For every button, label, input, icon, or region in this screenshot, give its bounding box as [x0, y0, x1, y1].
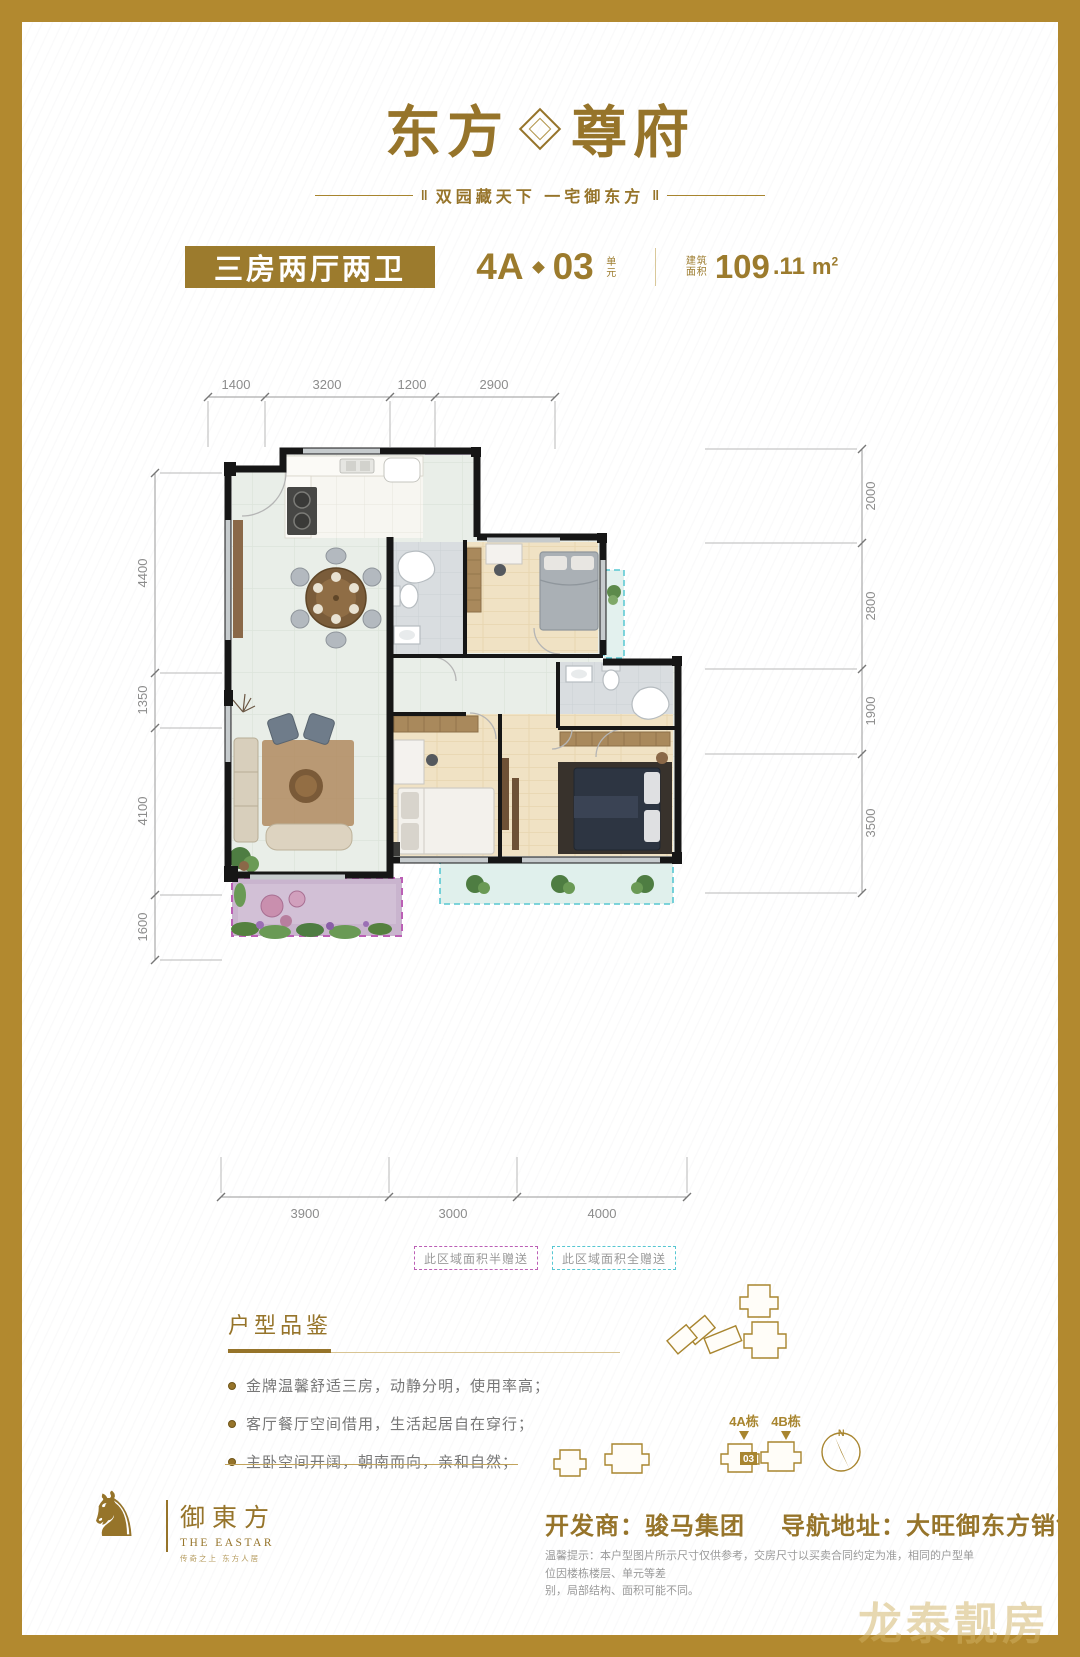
bullet-dot-icon [228, 1382, 236, 1390]
area-value-int: 109 [715, 248, 770, 286]
dimensions-bottom: 3900 3000 4000 [217, 1157, 691, 1221]
area-value-dec: .11 [773, 253, 805, 281]
small-diamond-icon [532, 261, 545, 274]
area-label: 建筑 面积 [686, 256, 708, 279]
full-gift-balcony-bottom [440, 860, 673, 904]
logo-text-left: 东方 [385, 88, 509, 169]
site-towers-upper [667, 1285, 786, 1358]
half-gift-garden-balcony [231, 878, 402, 939]
tagline-line-left [315, 195, 413, 196]
developer-name: 开发商：骏马集团 [545, 1506, 745, 1541]
tagline-line-right [667, 195, 765, 196]
dimensions-top: 1400 3200 1200 2900 [204, 377, 559, 449]
dimensions-left: 4400 1350 4100 1600 [135, 469, 222, 964]
watermark-text: 龙泰靓房 [858, 1588, 1050, 1652]
full-gift-strip-right [604, 570, 624, 658]
svg-text:N: N [838, 1428, 845, 1438]
footer-divider-line [225, 1464, 518, 1465]
developer-info: 开发商：骏马集团 导航地址：大旺御东方销售中心 [545, 1506, 1080, 1541]
legend-half-gift-label: 此区域面积半赠送 [424, 1250, 528, 1267]
svg-text:4A栋: 4A栋 [729, 1414, 759, 1429]
brand-logo: 东方 尊府 [0, 88, 1080, 169]
unit-suffix-label: 单元 [604, 256, 614, 278]
svg-text:4100: 4100 [135, 797, 150, 826]
area-unit: m2 [812, 254, 838, 280]
area-label-line1: 建筑 [686, 256, 708, 268]
svg-text:1400: 1400 [222, 377, 251, 392]
area-unit-sup: 2 [831, 255, 838, 269]
feature-text: 主卧空间开阔，朝南而向，亲和自然； [246, 1451, 518, 1472]
area-unit-letter: m [812, 254, 832, 279]
bullet-dot-icon [228, 1420, 236, 1428]
site-towers-lower [554, 1442, 801, 1476]
svg-text:1600: 1600 [135, 913, 150, 942]
svg-text:3200: 3200 [313, 377, 342, 392]
legend-half-gift: 此区域面积半赠送 [414, 1246, 538, 1270]
tagline-bar-right-icon: ‖ [652, 187, 659, 203]
brand-header: 东方 尊府 ‖ 双园藏天下 一宅御东方 ‖ [0, 88, 1080, 207]
diamond-ornament-icon [519, 107, 561, 149]
feature-text: 金牌温馨舒适三房，动静分明，使用率高； [246, 1375, 550, 1396]
area-label-line2: 面积 [686, 267, 708, 279]
tagline-text: 双园藏天下 一宅御东方 [436, 183, 644, 207]
feature-text: 客厅餐厅空间借用，生活起居自在穿行； [246, 1413, 534, 1434]
developer-logo-cn: 御東方 [180, 1498, 276, 1534]
svg-text:3500: 3500 [863, 809, 878, 838]
brand-tagline: ‖ 双园藏天下 一宅御东方 ‖ [0, 183, 1080, 207]
unit-title-bar: 三房两厅两卫 4A 03 单元 建筑 面积 109.11 m2 [185, 246, 868, 288]
tower-marker-icons [739, 1431, 791, 1440]
layout-type-badge: 三房两厅两卫 [185, 246, 435, 288]
horse-logo-icon: ♞ [86, 1484, 142, 1546]
unit-number-label: 03 [553, 246, 594, 288]
legend-full-gift: 此区域面积全赠送 [552, 1246, 676, 1270]
tagline-bar-left-icon: ‖ [421, 187, 428, 203]
unit-block-label: 4A [476, 246, 523, 288]
svg-text:2900: 2900 [480, 377, 509, 392]
sales-address: 导航地址：大旺御东方销售中心 [781, 1506, 1080, 1541]
disclaimer-line1: 温馨提示：本户型图片所示尺寸仅供参考，交房尺寸以买卖合同约定为准，相同的户型单位… [545, 1548, 983, 1583]
footer-logo-divider [166, 1500, 168, 1552]
svg-text:3000: 3000 [439, 1206, 468, 1221]
dimensions-right: 2000 2800 1900 3500 [705, 445, 878, 897]
svg-text:3900: 3900 [291, 1206, 320, 1221]
floor-plan-drawing: 1400 3200 1200 2900 4400 1350 4100 1600 [130, 330, 930, 1240]
built-area: 建筑 面积 109.11 m2 [656, 246, 868, 288]
floorplan-poster: 东方 尊府 ‖ 双园藏天下 一宅御东方 ‖ 三房两厅两卫 4A 03 单元 建筑… [0, 0, 1080, 1657]
logo-text-right: 尊府 [571, 88, 695, 169]
developer-logo-en: THE EASTAR [180, 1537, 276, 1549]
unit-id: 4A 03 单元 [435, 246, 655, 288]
developer-logo: 御東方 THE EASTAR 传奇之上 东方人居 [180, 1498, 276, 1564]
developer-logo-slogan: 传奇之上 东方人居 [180, 1553, 276, 1564]
svg-text:4B栋: 4B栋 [771, 1414, 801, 1429]
svg-text:2000: 2000 [863, 482, 878, 511]
svg-text:4400: 4400 [135, 559, 150, 588]
legend-full-gift-label: 此区域面积全赠送 [562, 1250, 666, 1267]
svg-text:1200: 1200 [398, 377, 427, 392]
site-plan-diagram: 4A栋 4B栋 03 N [540, 1268, 880, 1486]
compass: N [822, 1428, 860, 1471]
svg-text:1350: 1350 [135, 686, 150, 715]
svg-text:4000: 4000 [588, 1206, 617, 1221]
svg-text:1900: 1900 [863, 697, 878, 726]
svg-text:03: 03 [743, 1454, 755, 1465]
svg-text:2800: 2800 [863, 592, 878, 621]
